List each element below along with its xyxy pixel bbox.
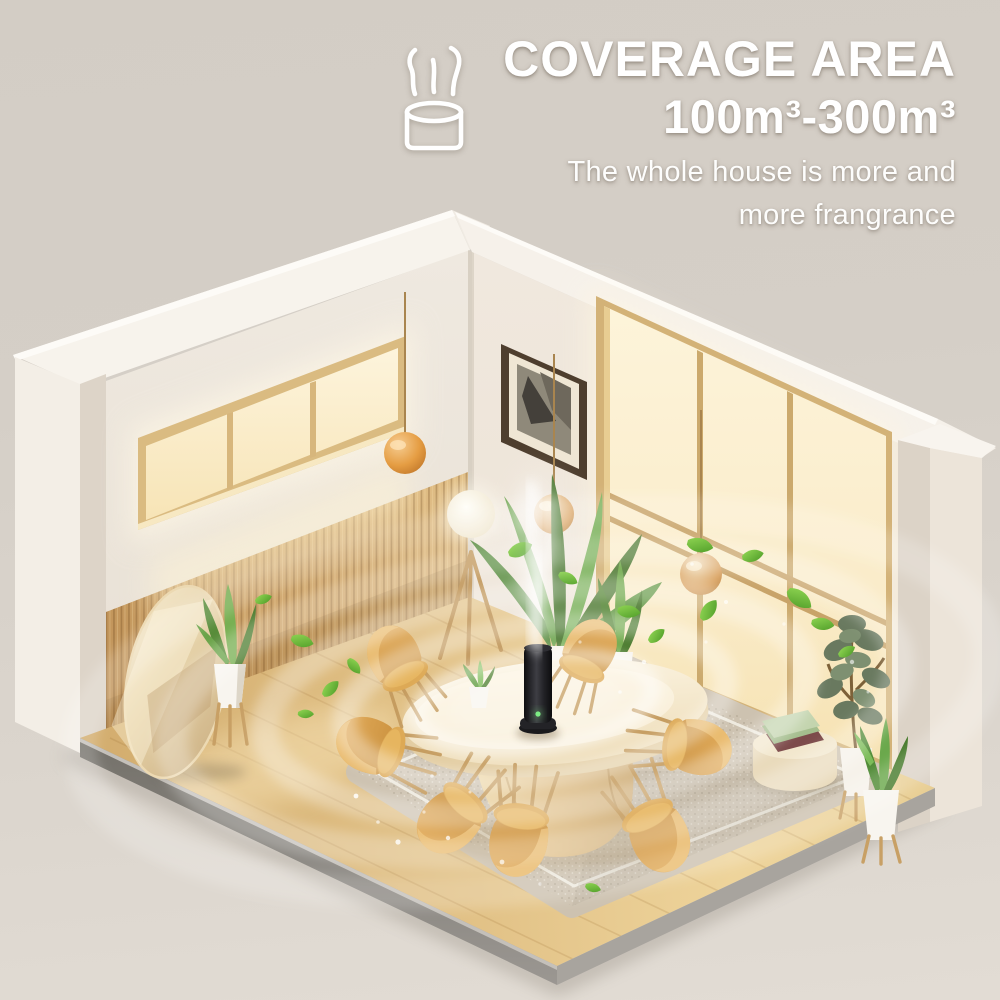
- headline-coverage-area: COVERAGE AREA: [503, 34, 956, 84]
- header: COVERAGE AREA 100m³-300m³ The whole hous…: [399, 34, 956, 236]
- subtitle-line-2: more frangrance: [739, 195, 956, 236]
- product-banner: COVERAGE AREA 100m³-300m³ The whole hous…: [0, 0, 1000, 1000]
- subtitle-line-1: The whole house is more and: [567, 152, 956, 193]
- diffuser-mist-icon: [399, 42, 475, 159]
- coverage-range: 100m³-300m³: [663, 93, 956, 140]
- left-wall-pillar: [15, 357, 80, 753]
